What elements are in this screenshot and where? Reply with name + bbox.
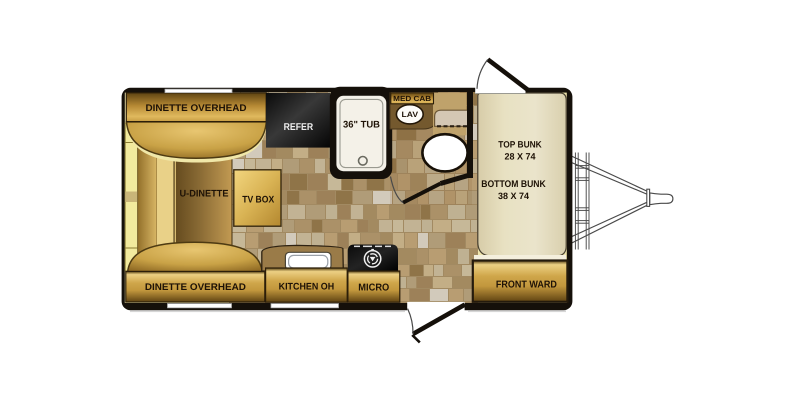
svg-text:KITCHEN OH: KITCHEN OH (279, 282, 335, 293)
svg-text:28 X 74: 28 X 74 (505, 151, 537, 161)
svg-text:36" TUB: 36" TUB (343, 120, 380, 131)
svg-text:DINETTE OVERHEAD: DINETTE OVERHEAD (145, 282, 246, 293)
svg-text:TOP BUNK: TOP BUNK (498, 139, 542, 149)
svg-text:MICRO: MICRO (358, 283, 389, 294)
svg-text:TV BOX: TV BOX (242, 194, 275, 205)
svg-text:DINETTE OVERHEAD: DINETTE OVERHEAD (146, 103, 247, 114)
svg-text:BOTTOM BUNK: BOTTOM BUNK (481, 179, 546, 190)
svg-text:U-DINETTE: U-DINETTE (180, 189, 230, 200)
svg-text:REFER: REFER (284, 122, 314, 133)
svg-text:FRONT WARD: FRONT WARD (496, 279, 557, 290)
svg-text:LAV: LAV (402, 110, 419, 119)
svg-text:MED CAB: MED CAB (393, 94, 431, 103)
svg-text:38 X 74: 38 X 74 (498, 191, 530, 201)
